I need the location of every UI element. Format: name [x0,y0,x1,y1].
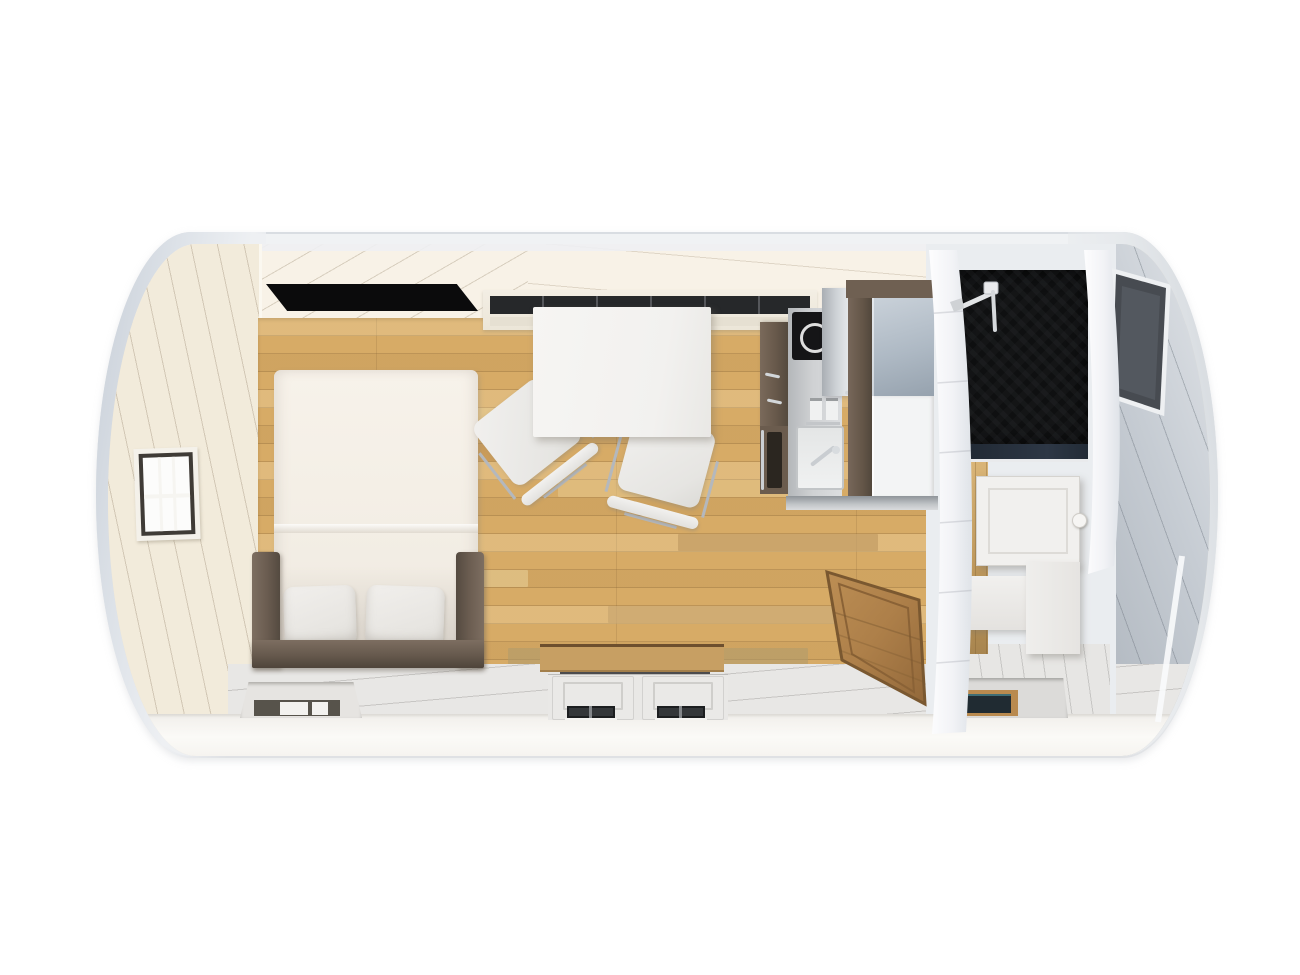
floorplan-canvas [0,0,1300,975]
bathroom-door [827,572,925,704]
pod-interior [108,244,1210,756]
overlay-shapes [108,244,1210,756]
wall-corner-seam [1158,556,1182,722]
bathroom-partition-wall [923,250,980,734]
rear-end-window [1112,274,1166,410]
shower-partition-wall [1084,250,1120,574]
